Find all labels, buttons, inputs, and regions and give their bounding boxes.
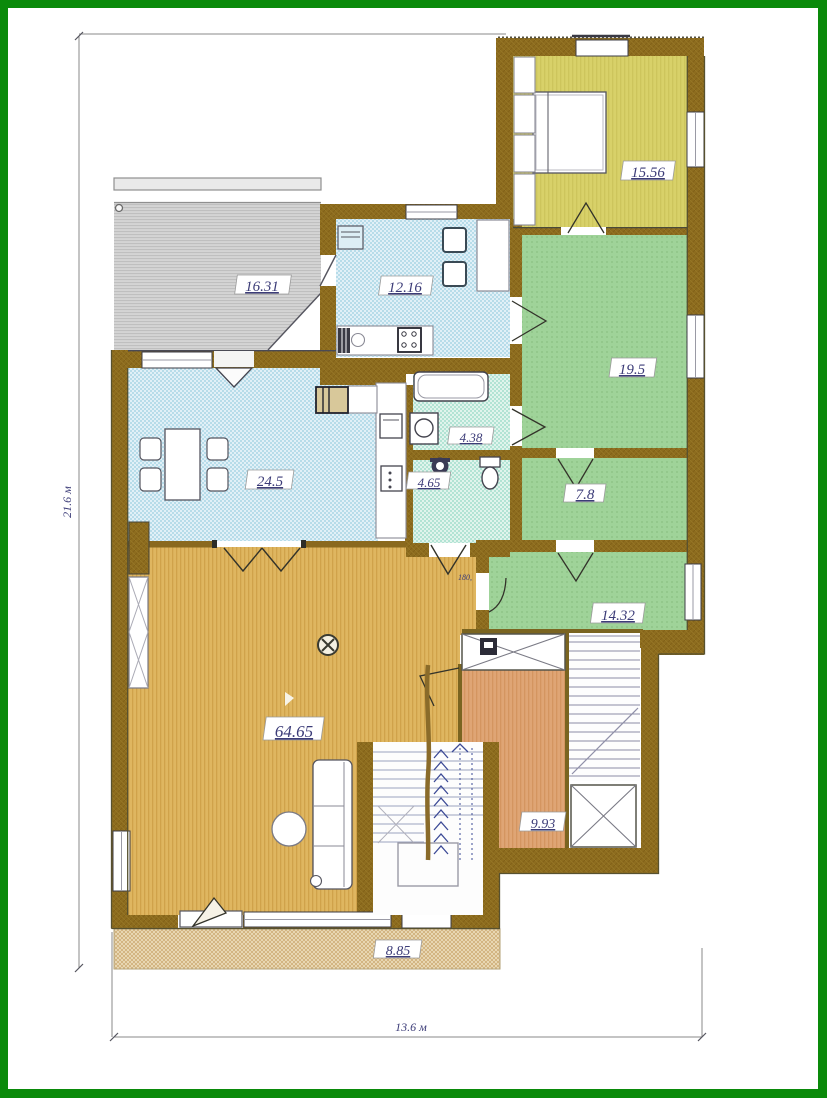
svg-text:15.56: 15.56 — [631, 165, 665, 181]
svg-text:4.38: 4.38 — [460, 430, 483, 445]
svg-text:13.6 м: 13.6 м — [395, 1020, 427, 1034]
svg-text:12.16: 12.16 — [388, 280, 422, 296]
svg-text:4.65: 4.65 — [418, 475, 441, 490]
svg-text:8.85: 8.85 — [386, 944, 411, 959]
svg-text:14.32: 14.32 — [601, 608, 635, 624]
svg-text:19.5: 19.5 — [619, 362, 646, 378]
svg-text:16.31: 16.31 — [245, 279, 279, 295]
svg-text:21.6 м: 21.6 м — [60, 486, 74, 518]
svg-text:7.8: 7.8 — [576, 487, 595, 503]
svg-text:180,: 180, — [458, 573, 472, 582]
svg-text:64.65: 64.65 — [275, 722, 313, 741]
svg-text:24.5: 24.5 — [257, 474, 284, 490]
svg-text:9.93: 9.93 — [531, 817, 556, 832]
